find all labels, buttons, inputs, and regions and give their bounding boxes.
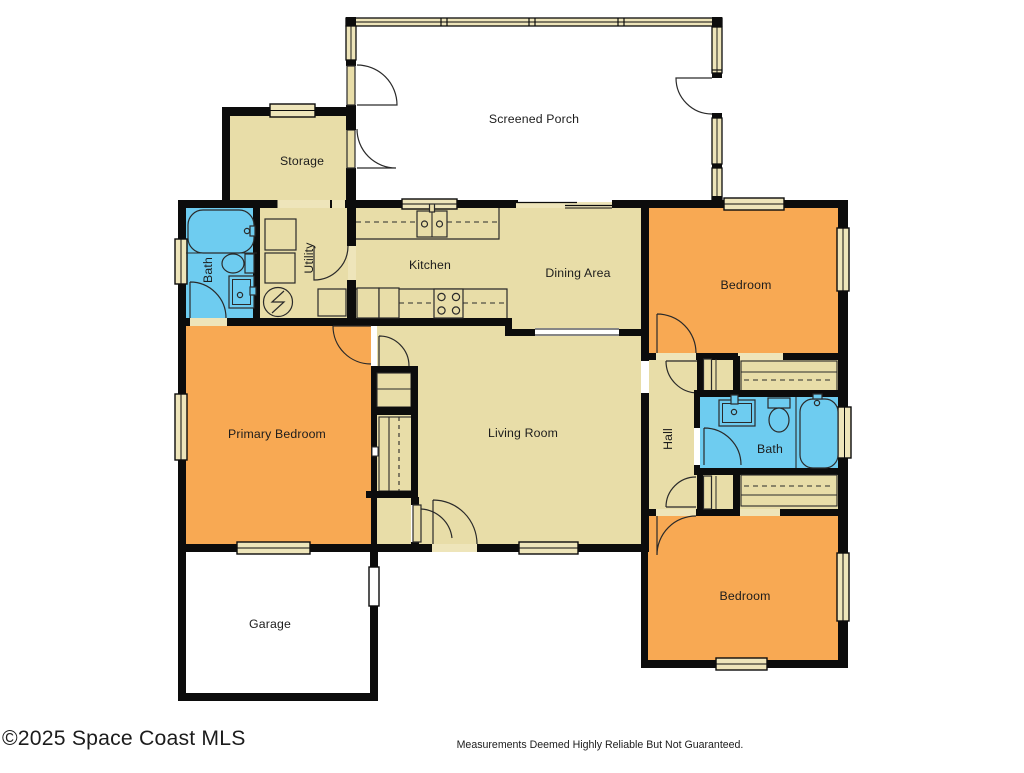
svg-text:Dining Area: Dining Area bbox=[545, 266, 610, 280]
svg-text:Living Room: Living Room bbox=[488, 426, 558, 440]
svg-text:Hall: Hall bbox=[661, 428, 675, 450]
svg-text:Utility: Utility bbox=[302, 242, 316, 274]
svg-text:Primary Bedroom: Primary Bedroom bbox=[228, 427, 326, 441]
svg-text:Kitchen: Kitchen bbox=[409, 258, 451, 272]
svg-text:Bedroom: Bedroom bbox=[720, 589, 771, 603]
svg-text:Bedroom: Bedroom bbox=[721, 278, 772, 292]
svg-text:©2025 Space Coast MLS: ©2025 Space Coast MLS bbox=[2, 727, 246, 750]
svg-text:Bath: Bath bbox=[201, 257, 215, 283]
svg-text:Garage: Garage bbox=[249, 617, 291, 631]
svg-text:Storage: Storage bbox=[280, 154, 324, 168]
svg-text:Measurements Deemed Highly Rel: Measurements Deemed Highly Reliable But … bbox=[457, 739, 744, 751]
svg-text:Bath: Bath bbox=[757, 442, 783, 456]
svg-text:Screened Porch: Screened Porch bbox=[489, 112, 579, 126]
